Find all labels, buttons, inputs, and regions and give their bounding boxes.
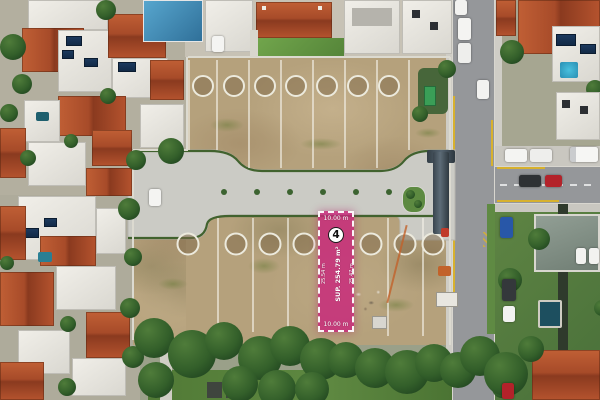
tree	[64, 134, 78, 148]
tree	[12, 74, 32, 94]
car-white	[576, 248, 586, 264]
truck-white	[570, 147, 598, 162]
car-dark	[502, 279, 516, 301]
car-white	[455, 0, 467, 15]
entrance-canopy	[433, 152, 449, 234]
solar-panel	[62, 50, 74, 59]
chimney	[318, 6, 322, 10]
roof-window	[412, 10, 420, 18]
van-white	[458, 18, 471, 40]
construction-equipment	[438, 266, 451, 276]
house-roof	[56, 266, 116, 310]
tree	[124, 248, 142, 266]
tree	[20, 150, 36, 166]
pool	[560, 62, 578, 78]
car-white	[589, 248, 599, 264]
house-roof	[86, 168, 132, 196]
tree	[158, 138, 184, 164]
car-white	[212, 36, 224, 52]
bush	[414, 200, 422, 208]
lot-dimension-top: 10.00 m	[320, 215, 352, 222]
lot-dimension-bottom: 10.00 m	[320, 321, 352, 328]
tree	[60, 316, 76, 332]
construction-trailer	[372, 316, 387, 329]
tree	[438, 60, 456, 78]
house-roof	[24, 100, 60, 142]
tree	[295, 372, 329, 400]
lot-4-marker[interactable]: 10.00 m 4 SUP. 254.79 m² 25.54 m 25.47 m…	[318, 211, 354, 332]
car-red	[545, 175, 562, 187]
aerial-photo: 10.00 m 4 SUP. 254.79 m² 25.54 m 25.47 m…	[0, 0, 600, 400]
tree	[118, 198, 140, 220]
car-white	[477, 80, 489, 99]
lot-area-label: SUP. 254.79 m²	[334, 244, 342, 304]
house-roof	[532, 350, 600, 400]
roof-window	[580, 106, 588, 114]
house-roof	[0, 272, 54, 326]
roof-window	[562, 100, 570, 108]
van-white	[505, 149, 527, 162]
lawn	[258, 38, 344, 56]
solar-panel	[580, 44, 596, 54]
pool	[538, 300, 562, 328]
solar-panel	[84, 58, 98, 67]
tree	[96, 0, 116, 20]
car-dark	[519, 175, 541, 187]
tree	[528, 228, 550, 250]
entrance-island	[402, 186, 426, 213]
construction-debris	[352, 286, 384, 314]
tree	[500, 40, 524, 64]
tree	[138, 362, 174, 398]
house-roof	[496, 0, 516, 36]
tree	[120, 298, 140, 318]
tree	[58, 378, 76, 396]
van-white	[530, 149, 552, 162]
solar-panel	[118, 62, 136, 72]
van-white	[458, 43, 471, 63]
car-blue	[500, 217, 513, 238]
lot-dimension-right: 25.47 m	[349, 264, 355, 284]
pergola	[207, 382, 222, 398]
solar-panel	[24, 228, 39, 238]
tree	[0, 34, 26, 60]
house-roof	[402, 0, 452, 54]
solar-panel	[556, 34, 576, 46]
house-roof	[0, 206, 26, 260]
solar-panel	[44, 218, 57, 227]
pool	[36, 112, 49, 121]
tree	[258, 370, 296, 400]
house-roof	[0, 362, 44, 400]
tree	[100, 88, 116, 104]
lot-number: 4	[332, 229, 339, 241]
tree	[412, 106, 428, 122]
house-roof	[150, 60, 184, 100]
bush	[406, 190, 415, 199]
house-roof	[28, 0, 108, 30]
house-roof	[28, 142, 86, 186]
car-white	[503, 306, 515, 322]
chimney	[262, 6, 266, 10]
tree	[126, 150, 146, 170]
courtyard	[352, 8, 392, 26]
construction-shed	[436, 292, 458, 307]
construction-equipment	[441, 228, 449, 237]
car-red	[502, 383, 514, 399]
solar-panel	[66, 36, 82, 46]
lot-dimension-left: 25.54 m	[321, 264, 327, 284]
roof-window	[430, 22, 438, 30]
car-white	[149, 189, 161, 206]
glass-roof-building	[143, 0, 203, 42]
tree	[0, 256, 14, 270]
tree	[222, 366, 258, 400]
walk-path	[250, 30, 258, 57]
house-roof	[72, 358, 126, 396]
play-structure	[424, 86, 436, 106]
pool	[38, 252, 52, 262]
lot-number-badge: 4	[328, 227, 344, 243]
tree	[0, 104, 18, 122]
